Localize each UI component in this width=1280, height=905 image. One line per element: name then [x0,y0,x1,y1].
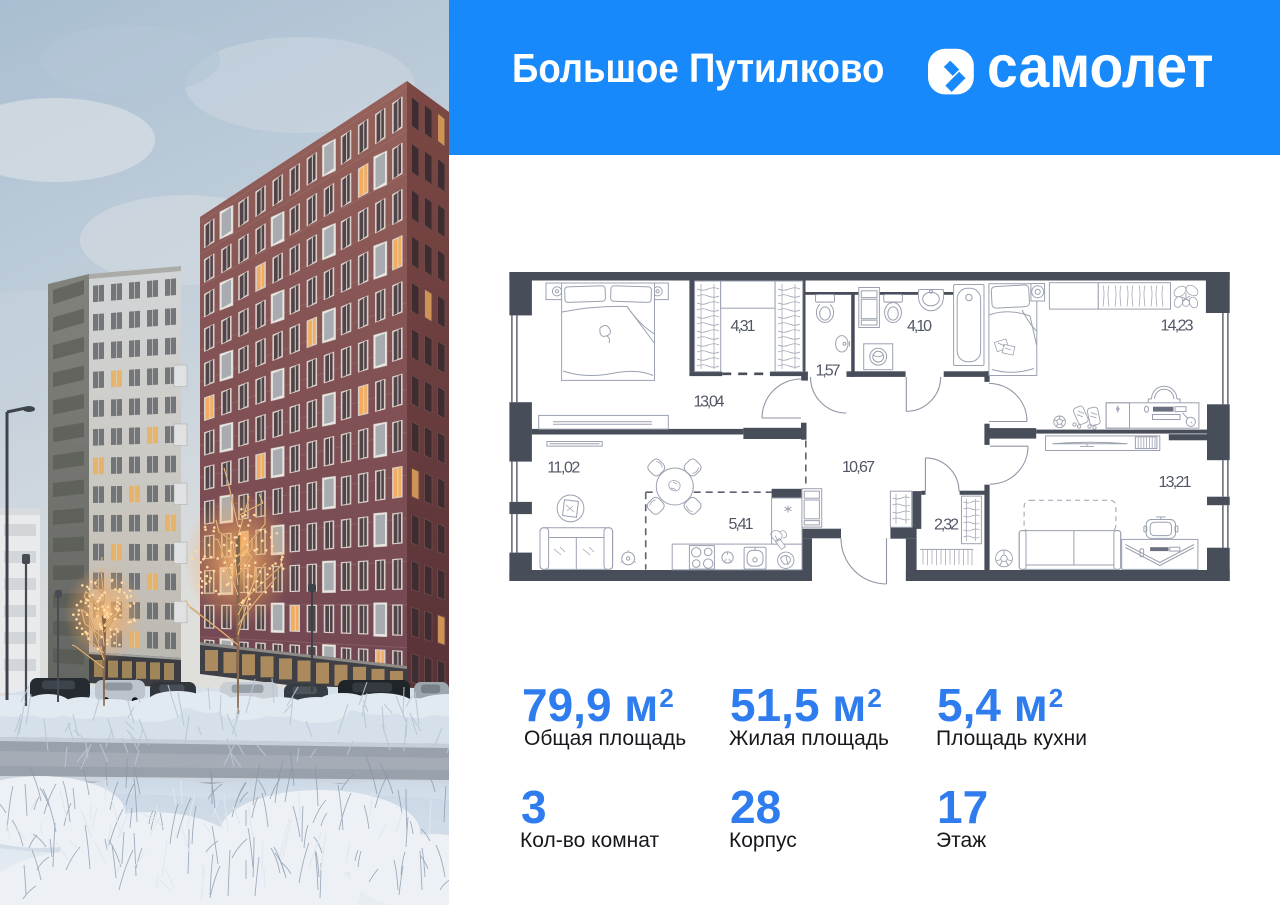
svg-text:14,23: 14,23 [1161,318,1194,335]
svg-text:5,41: 5,41 [729,516,754,533]
svg-text:10,67: 10,67 [842,459,875,476]
svg-text:1,57: 1,57 [816,363,841,380]
svg-text:2,32: 2,32 [934,517,959,534]
svg-text:13,21: 13,21 [1159,474,1192,491]
svg-text:11,02: 11,02 [547,460,580,477]
svg-text:4,10: 4,10 [907,318,932,335]
svg-text:13,04: 13,04 [694,394,725,411]
svg-text:4,31: 4,31 [731,318,756,335]
